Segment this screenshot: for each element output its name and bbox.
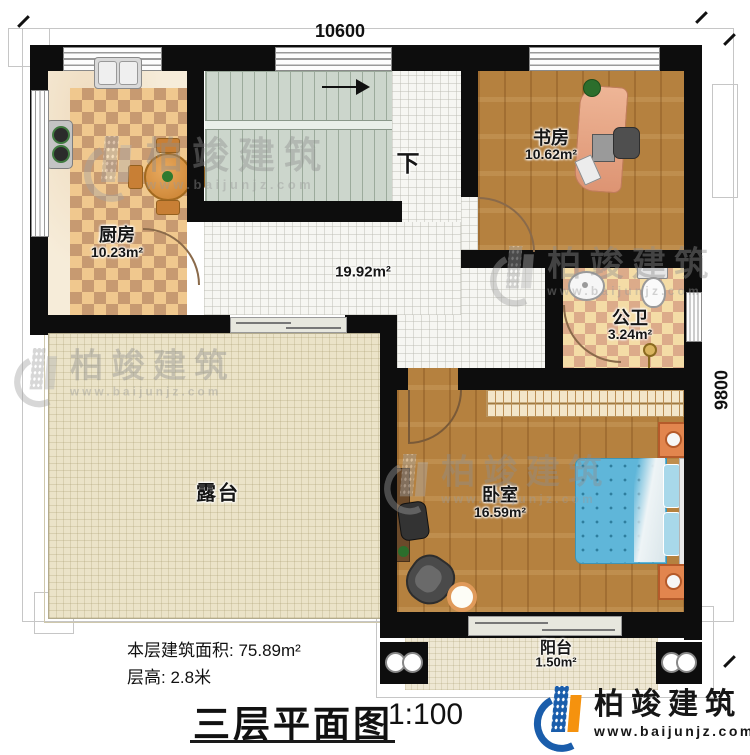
dining-table — [144, 153, 192, 201]
stair-landing-rail — [205, 120, 392, 130]
stove — [46, 120, 73, 169]
sliding-door-balcony — [468, 616, 622, 636]
office-chair — [396, 500, 430, 542]
wall-kitchen-bottom — [30, 315, 230, 333]
window-stairs — [275, 47, 392, 71]
table-plant — [162, 171, 173, 182]
dining-chair — [156, 200, 180, 215]
wall-bathroom-left — [545, 268, 563, 372]
brand-logo-icon — [536, 686, 586, 742]
corner-outline-topright — [712, 84, 738, 198]
sink-basin — [119, 61, 138, 85]
bedroom-plant — [398, 546, 409, 557]
wall-right — [684, 45, 702, 640]
wardrobe — [486, 390, 684, 417]
dining-chair — [156, 138, 180, 153]
bathroom-area: 3.24m² — [608, 326, 652, 342]
burner — [52, 145, 70, 163]
balcony-area: 1.50m² — [535, 655, 576, 670]
floor-plan: 厨房 10.23m² 书房 10.62m² 19.92m² 公卫 3.24m² … — [0, 0, 750, 755]
dimension-tick — [695, 11, 708, 24]
corridor-floor — [461, 268, 545, 370]
computer-monitor — [592, 134, 615, 162]
hall-passage-floor — [397, 315, 461, 370]
dimension-right: 9800 — [712, 370, 733, 410]
brand-logo: 柏竣建筑 www.baijunjz.com — [536, 686, 750, 742]
study-chair — [613, 127, 640, 159]
study-area: 10.62m² — [525, 146, 577, 162]
wall-bathroom-bottom — [458, 368, 702, 390]
wall-hall-terrace — [345, 315, 397, 333]
dimension-tick — [723, 655, 736, 668]
wall-under-stairs — [187, 201, 402, 222]
window-study — [529, 47, 660, 71]
floor-height-text: 层高: 2.8米 — [127, 663, 211, 688]
floor-drain — [643, 343, 657, 357]
lamp — [665, 573, 682, 590]
window-bathroom — [686, 292, 702, 342]
stairs-down-label: 下 — [397, 144, 420, 178]
terrace-label: 露台 — [196, 477, 240, 506]
plan-scale: 1:100 — [388, 698, 463, 732]
window-kitchen-left — [31, 90, 49, 237]
kitchen-sink — [94, 57, 142, 89]
bed-sheet-fold — [634, 458, 665, 562]
sink-basin — [98, 61, 117, 85]
title-underline — [190, 740, 395, 743]
bedroom-door-leaf — [408, 390, 410, 442]
chair-cushion — [411, 561, 446, 596]
balcony-pier-left — [380, 642, 428, 684]
dimension-top: 10600 — [315, 21, 365, 42]
wall-kitchen-stairs — [187, 45, 204, 222]
stair-arrow-icon — [356, 79, 370, 95]
hall-area: 19.92m² — [335, 264, 391, 281]
lamp — [665, 431, 682, 448]
stool — [447, 582, 477, 612]
wall-study-left — [461, 45, 478, 197]
wall-bedroom-left — [380, 330, 397, 638]
brand-website: www.baijunjz.com — [594, 724, 750, 738]
bathroom-sink — [568, 271, 605, 301]
brand-name: 柏竣建筑 — [594, 690, 750, 720]
burner — [52, 126, 70, 144]
sliding-door-terrace — [230, 317, 347, 333]
study-door-threshold — [461, 197, 478, 250]
balcony-floor — [405, 638, 658, 690]
wall-bedroom-top-stub — [397, 368, 408, 390]
study-plant — [584, 80, 600, 96]
hall-floor — [204, 222, 461, 315]
floor-area-text: 本层建筑面积: 75.89m² — [127, 636, 301, 661]
kitchen-area: 10.23m² — [91, 244, 143, 260]
sink-drain — [582, 282, 588, 288]
dining-chair — [128, 165, 143, 189]
balcony-pier-right — [656, 642, 702, 684]
dimension-tick — [17, 15, 30, 28]
wall-study-bottom — [461, 250, 702, 268]
bedroom-area: 16.59m² — [474, 504, 526, 520]
stair-arrow-line — [322, 86, 356, 88]
